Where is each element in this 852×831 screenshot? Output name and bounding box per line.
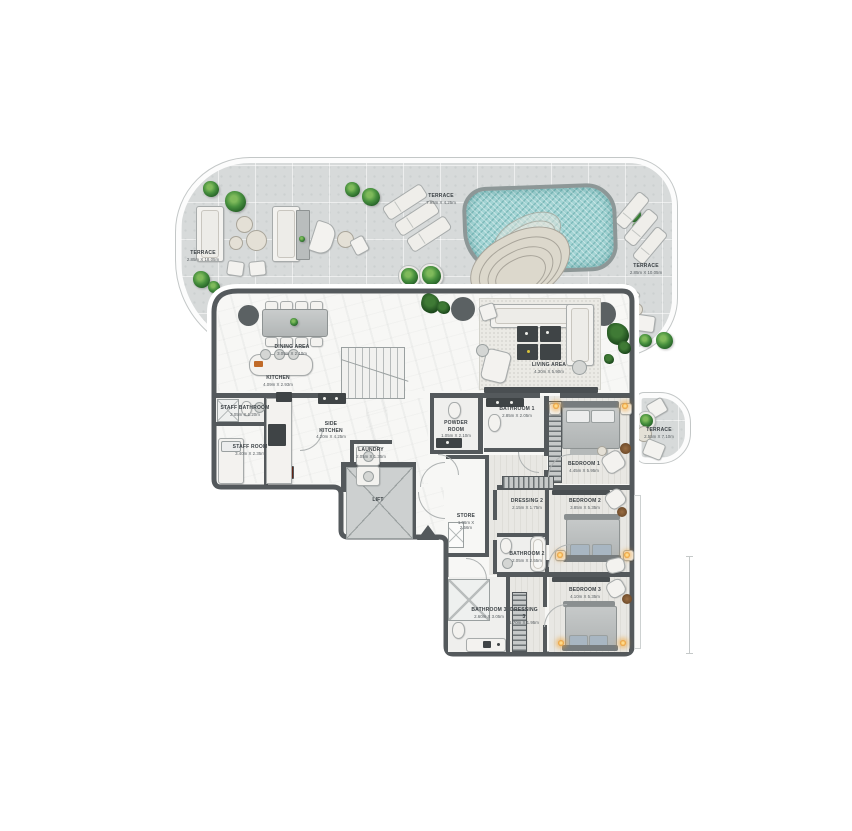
bedside-lamp [553, 403, 559, 409]
room-dims: 3.85m X 5.35m [560, 505, 610, 511]
sink-dot [497, 643, 500, 646]
pot-plant-icon [622, 594, 632, 604]
coffee-table [229, 236, 243, 250]
lounger-line [406, 217, 413, 228]
room-label-bathroom3: BATHROOM 32.60m X 3.05m [467, 607, 511, 619]
sink [510, 401, 513, 404]
potted-plant-icon [420, 264, 443, 287]
dimension-tick [686, 653, 693, 654]
room-dims: 2.05m X 1.35m [351, 454, 391, 460]
staircase [341, 347, 405, 399]
pot-plant-icon [617, 507, 627, 517]
room-name: LIFT [363, 497, 393, 504]
wall [446, 553, 489, 557]
sofa-cushion [571, 308, 589, 362]
room-dims: 2.15m X 1.75m [505, 505, 549, 511]
plant-icon [604, 354, 614, 364]
room-label-staff-bathroom: STAFF BATHROOM2.05m X 1.20m [214, 405, 276, 417]
table-decor [525, 332, 528, 335]
plant-icon [225, 191, 246, 212]
wall [543, 577, 547, 607]
room-name: BATHROOM 2 [505, 551, 549, 558]
vanity [466, 638, 506, 652]
sink [446, 441, 449, 444]
kitchen-item [254, 361, 263, 367]
room-dims: 4.09m X 2.93m [250, 382, 306, 388]
room-dims: 4.30m X 5.90m [519, 369, 579, 375]
room-dims: 2.05m X 2.55m [505, 558, 549, 564]
vanity [436, 438, 462, 448]
double-sink [318, 393, 346, 404]
media-console [552, 490, 610, 495]
room-dims: 2.85m X 18.05m [176, 257, 230, 263]
toilet [452, 622, 465, 639]
table-decor [527, 350, 530, 353]
room-dims: 7.95m X 4.25m [414, 200, 468, 206]
room-label-terrace-left: TERRACE2.85m X 18.05m [176, 250, 230, 262]
room-name: BATHROOM 1 [492, 406, 542, 413]
bar-counter [296, 210, 310, 260]
stair-break-line [342, 359, 409, 382]
room-label-terrace-top: TERRACE7.95m X 4.25m [414, 193, 468, 205]
dimension-line [689, 556, 690, 654]
pillow [591, 410, 615, 423]
room-dims: 2.85m X 2.05m [492, 413, 542, 419]
dressing2-floor [497, 490, 545, 534]
room-name: BATHROOM 3 [467, 607, 511, 614]
wall [485, 455, 489, 555]
side-table [476, 344, 489, 357]
wall [350, 440, 392, 444]
ottoman [226, 260, 245, 277]
column [238, 305, 259, 326]
room-dims: 1.70m X 1.95m [509, 620, 539, 626]
room-label-laundry: LAUNDRY2.05m X 1.35m [351, 447, 391, 459]
outdoor-chair [635, 314, 656, 333]
wall [478, 396, 483, 454]
bed-headboard [562, 645, 618, 651]
column [451, 297, 475, 321]
plant-icon [362, 188, 380, 206]
floor-plan-canvas: TERRACE2.85m X 18.05m TERRACE7.95m X 4.2… [0, 0, 852, 831]
room-label-dressing2: DRESSING 22.15m X 1.75m [505, 498, 549, 510]
dryer-machine [356, 466, 380, 486]
door-arc [544, 604, 567, 627]
room-dims: 2.85m X 10.05m [617, 270, 675, 276]
plant-icon [639, 334, 652, 347]
toilet [448, 402, 461, 419]
media-console [552, 577, 610, 582]
wardrobe [502, 476, 554, 489]
lounger-line [641, 247, 650, 255]
room-name: SIDE KITCHEN [314, 421, 348, 434]
bedside-lamp [620, 640, 626, 646]
coffee-table [517, 344, 538, 360]
room-label-staff-room: STAFF ROOM3.40m X 2.35m [225, 444, 275, 456]
media-console [484, 387, 598, 393]
wall [430, 398, 434, 452]
wall [493, 540, 497, 574]
bedside-lamp [622, 403, 628, 409]
plant-icon [299, 236, 305, 242]
dimension-tick [686, 556, 693, 557]
room-label-bedroom2: BEDROOM 23.85m X 5.35m [560, 498, 610, 510]
door-arc [418, 492, 445, 519]
room-label-store: STORE1.06m X 2.56m [452, 513, 480, 531]
window-band [634, 495, 641, 649]
machine-drum [363, 471, 374, 482]
wall [446, 455, 489, 459]
side-table [597, 446, 607, 456]
door-arc [466, 558, 487, 579]
appliance-tower [268, 424, 286, 446]
room-label-lift: LIFT [363, 497, 393, 504]
room-label-terrace-right: TERRACE2.85m X 10.05m [617, 263, 675, 275]
room-label-bedroom3: BEDROOM 34.10m X 5.35m [560, 587, 610, 599]
wall [493, 490, 497, 520]
room-name: STAFF BATHROOM [214, 405, 276, 412]
lounger-line [418, 233, 425, 244]
plant-icon [345, 182, 360, 197]
room-label-bedroom1: BEDROOM 14.45m X 5.95m [559, 461, 609, 473]
room-dims: 3.09m X 2.10m [264, 351, 320, 357]
sink-dot [335, 397, 338, 400]
room-name: POWDER ROOM [441, 420, 471, 433]
sink [483, 641, 491, 648]
room-name: DRESSING 3 [509, 607, 539, 620]
sink-dot [323, 397, 326, 400]
room-dims: 2.60m X 3.05m [467, 614, 511, 620]
potted-plant-icon [399, 266, 420, 287]
lounger-line [394, 201, 401, 212]
room-label-side-kitchen: SIDE KITCHEN4.20m X 4.25m [314, 421, 348, 440]
coffee-table [540, 326, 561, 342]
pot-plant-icon [620, 443, 631, 454]
bedside-lamp [624, 552, 630, 558]
bedside-lamp [558, 640, 564, 646]
sofa-chaise [566, 304, 594, 366]
room-dims: 4.45m X 5.95m [559, 468, 609, 474]
room-dims: 2.05m X 1.20m [214, 412, 276, 418]
room-label-living: LIVING AREA4.30m X 5.90m [519, 362, 579, 374]
coffee-table [540, 344, 561, 360]
room-dims: 4.20m X 4.25m [314, 434, 348, 440]
wall [214, 422, 266, 426]
sofa-cushion [277, 210, 295, 258]
room-label-dining: DINING AREA3.09m X 2.10m [264, 344, 320, 356]
plant-icon [203, 181, 219, 197]
plant-icon [656, 332, 673, 349]
lounger-line [632, 229, 641, 237]
room-label-dressing3: DRESSING 31.70m X 1.95m [509, 607, 539, 626]
ottoman [248, 260, 266, 277]
table-decor [546, 331, 549, 334]
room-label-powder: POWDER ROOM1.05m X 2.10m [441, 420, 471, 439]
coffee-table [246, 230, 267, 251]
room-name: DRESSING 2 [505, 498, 549, 505]
room-label-bathroom2: BATHROOM 22.05m X 2.55m [505, 551, 549, 563]
coffee-table [517, 326, 538, 342]
sink [496, 401, 499, 404]
room-dims: 2.55m X 7.10m [636, 434, 682, 440]
wall [560, 393, 632, 398]
room-label-bathroom1: BATHROOM 12.85m X 2.05m [492, 406, 542, 418]
entrance-arrow [417, 525, 439, 540]
room-label-kitchen: KITCHEN4.09m X 2.93m [250, 375, 306, 387]
cooktop [276, 392, 292, 402]
pillow [566, 410, 590, 423]
table-plant-icon [290, 318, 298, 326]
room-label-terrace-small: TERRACE2.55m X 7.10m [636, 427, 682, 439]
room-dims: 1.05m X 2.10m [441, 433, 471, 439]
lounger-line [623, 212, 632, 220]
room-dims: 1.06m X 2.56m [452, 520, 480, 531]
wall [543, 625, 547, 654]
room-dims: 3.40m X 2.35m [225, 451, 275, 457]
plant-icon [208, 281, 220, 293]
room-dims: 4.10m X 5.35m [560, 594, 610, 600]
apartment-outline [0, 0, 852, 831]
plant-icon [618, 341, 631, 354]
